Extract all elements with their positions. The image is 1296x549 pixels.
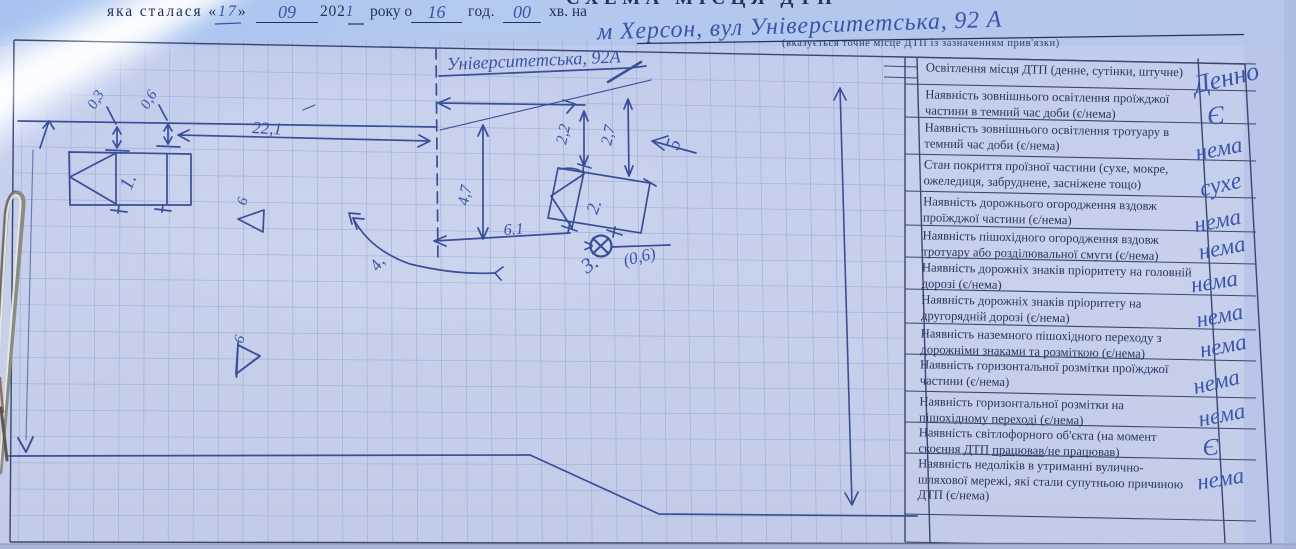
svg-text:4,7: 4,7 (455, 183, 475, 207)
svg-text:6.1: 6.1 (503, 221, 524, 239)
svg-text:22,1: 22,1 (252, 118, 283, 139)
